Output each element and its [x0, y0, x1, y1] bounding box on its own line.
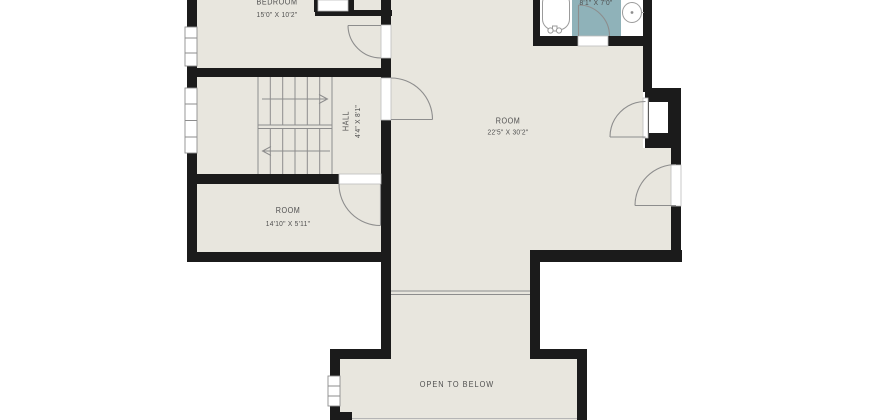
wall-right-low [671, 206, 681, 262]
bathroom-door-opening [578, 36, 608, 46]
wall-left-low [187, 153, 197, 262]
corridor-floor [391, 250, 530, 359]
bedroom-name-label: BEDROOM [257, 0, 298, 7]
wall-right-mid [671, 148, 681, 165]
small-room-dims-label: 14'10" X 5'11" [266, 221, 311, 228]
wall-closet-mid-stub [348, 0, 354, 12]
bedroom-window [185, 27, 197, 66]
right-door-opening [671, 165, 681, 206]
wall-hall-bottom [197, 174, 339, 184]
right-closet-interior [649, 102, 668, 133]
hall-dims-label: 4'4" X 8'1" [355, 105, 362, 138]
open-to-below-label: OPEN TO BELOW [420, 380, 495, 389]
wall-corridor-right [530, 250, 540, 359]
wall-right-top [643, 0, 652, 92]
bedroom-closet-opening [318, 0, 348, 11]
wall-bath-bottom-east [608, 36, 643, 46]
main-room-dims-label: 22'5" X 30'2" [487, 129, 528, 136]
main-room-name-label: ROOM [496, 116, 521, 125]
bedroom-door-opening [381, 25, 391, 58]
wall-corridor-left [381, 252, 391, 359]
small-room-name-label: ROOM [276, 206, 301, 215]
bedroom-dims-label: 15'0" X 10'2" [256, 12, 297, 19]
wall-main-room-bottom [530, 250, 682, 262]
bathtub-tap-right [556, 28, 561, 33]
wall-divider-mid [381, 58, 391, 78]
wall-divider-top [381, 0, 391, 25]
floorplan-drawing: BEDROOM 15'0" X 10'2" 8'1" X 7'0" HALL 4… [0, 0, 870, 420]
closet-door-opening [643, 98, 648, 138]
wall-openbelow-right [577, 349, 587, 420]
hall-name-label: HALL [341, 111, 350, 131]
toilet-drain-dot [631, 11, 634, 14]
wall-small-room-bottom [187, 252, 391, 262]
wall-left-top [187, 0, 197, 28]
small-room-floor [197, 174, 391, 262]
bathtub-tap-left [548, 28, 553, 33]
wall-divider-low [381, 120, 391, 252]
wall-bath-bottom-west [533, 36, 578, 46]
floor-areas [187, 0, 672, 420]
hall-door-opening [381, 78, 391, 120]
floorplan-page: BEDROOM 15'0" X 10'2" 8'1" X 7'0" HALL 4… [0, 0, 870, 420]
bathroom-dims-label: 8'1" X 7'0" [579, 0, 612, 7]
wall-bedroom-bottom [187, 68, 391, 77]
openbelow-window [328, 376, 340, 406]
small-room-door-opening [339, 174, 381, 184]
wall-openbelow-bottom-stub [338, 412, 352, 420]
wall-openbelow-left-a [330, 349, 340, 376]
